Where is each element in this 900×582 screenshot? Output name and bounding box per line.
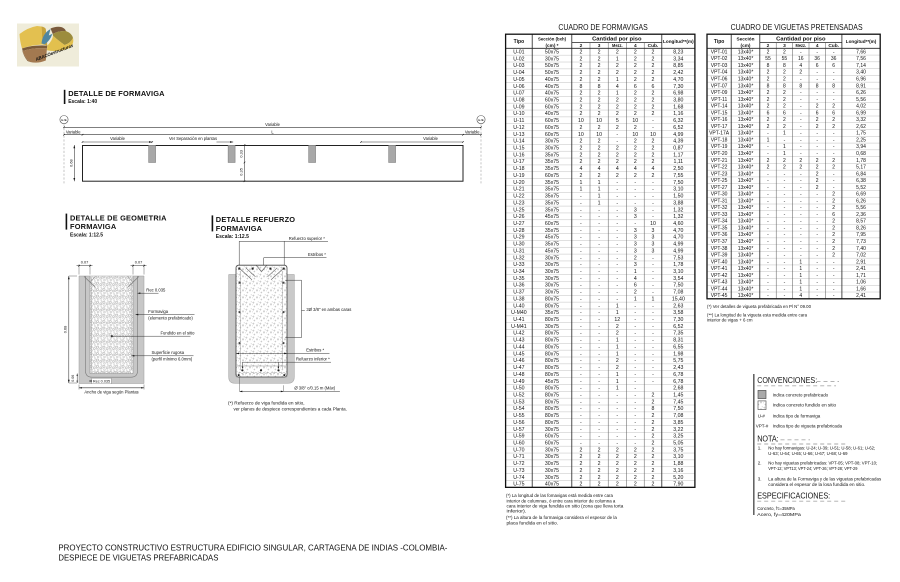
svg-text:-: - xyxy=(833,49,835,55)
svg-text:3,34: 3,34 xyxy=(673,56,683,62)
svg-text:13x40*: 13x40* xyxy=(738,158,754,164)
svg-text:6,26: 6,26 xyxy=(856,198,866,204)
svg-text:-: - xyxy=(598,276,600,282)
svg-text:Superficie rugosa: Superficie rugosa xyxy=(152,350,185,355)
svg-text:7,40: 7,40 xyxy=(856,246,866,252)
svg-text:Variable: Variable xyxy=(110,136,125,141)
svg-text:-: - xyxy=(784,219,786,225)
svg-text:2: 2 xyxy=(634,139,637,145)
svg-text:2: 2 xyxy=(616,49,619,55)
svg-text:2: 2 xyxy=(652,152,655,158)
svg-text:7,30: 7,30 xyxy=(673,84,683,90)
svg-text:2: 2 xyxy=(634,454,637,460)
svg-text:60x75: 60x75 xyxy=(545,221,559,227)
svg-text:-: - xyxy=(784,171,786,177)
svg-text:ESPECIFICACIONES:: ESPECIFICACIONES: xyxy=(757,490,830,500)
svg-text:-: - xyxy=(767,259,769,265)
svg-text:10: 10 xyxy=(578,118,584,124)
svg-text:-: - xyxy=(800,225,802,231)
svg-text:-: - xyxy=(598,413,600,419)
svg-text:10: 10 xyxy=(650,221,656,227)
svg-text:VPT-07: VPT-07 xyxy=(711,83,728,89)
svg-text:2: 2 xyxy=(579,125,582,131)
svg-text:-: - xyxy=(652,344,654,350)
svg-text:80x75: 80x75 xyxy=(545,351,559,357)
svg-text:1: 1 xyxy=(598,194,601,200)
svg-text:-: - xyxy=(816,253,818,259)
svg-text:Escala: 1:40: Escala: 1:40 xyxy=(68,99,97,105)
svg-text:U-38: U-38 xyxy=(513,296,524,302)
svg-text:3,32: 3,32 xyxy=(856,117,866,123)
svg-text:2: 2 xyxy=(616,70,619,76)
svg-text:3,58: 3,58 xyxy=(673,310,683,316)
svg-text:2: 2 xyxy=(652,434,655,440)
svg-text:4,39: 4,39 xyxy=(673,139,683,145)
svg-text:-: - xyxy=(634,221,636,227)
svg-text:U-60: U-60 xyxy=(513,441,524,447)
svg-text:-: - xyxy=(580,221,582,227)
svg-text:13x40*: 13x40* xyxy=(738,239,754,245)
svg-text:U-09: U-09 xyxy=(513,104,524,110)
svg-text:U-48: U-48 xyxy=(513,372,524,378)
svg-text:8: 8 xyxy=(598,84,601,90)
svg-text:4: 4 xyxy=(799,63,802,69)
svg-text:-: - xyxy=(652,331,654,337)
svg-text:2: 2 xyxy=(579,98,582,104)
svg-text:6: 6 xyxy=(816,110,819,116)
svg-text:2,68: 2,68 xyxy=(673,386,683,392)
svg-text:7,08: 7,08 xyxy=(673,413,683,419)
svg-text:Estribos *: Estribos * xyxy=(308,252,326,257)
svg-text:-: - xyxy=(580,207,582,213)
svg-text:60x75: 60x75 xyxy=(545,118,559,124)
svg-text:50x75: 50x75 xyxy=(545,63,559,69)
svg-text:-: - xyxy=(652,214,654,220)
svg-text:-: - xyxy=(652,118,654,124)
svg-text:-: - xyxy=(598,228,600,234)
svg-text:-: - xyxy=(652,324,654,330)
svg-text:-: - xyxy=(634,194,636,200)
svg-text:-: - xyxy=(652,303,654,309)
svg-text:-: - xyxy=(634,200,636,206)
svg-text:-: - xyxy=(800,117,802,123)
svg-text:1: 1 xyxy=(579,180,582,186)
svg-text:-: - xyxy=(598,283,600,289)
svg-text:-: - xyxy=(816,205,818,211)
svg-text:6,52: 6,52 xyxy=(673,324,683,330)
svg-text:80x75: 80x75 xyxy=(545,413,559,419)
svg-text:U-20: U-20 xyxy=(513,180,524,186)
svg-text:40x75: 40x75 xyxy=(545,84,559,90)
svg-text:4,02: 4,02 xyxy=(856,104,866,110)
svg-text:U-13: U-13 xyxy=(513,132,524,138)
svg-text:3,54: 3,54 xyxy=(673,276,683,282)
svg-text:U-05: U-05 xyxy=(513,77,524,83)
svg-text:-: - xyxy=(816,198,818,204)
svg-text:6,84: 6,84 xyxy=(856,171,866,177)
svg-text:-: - xyxy=(634,386,636,392)
svg-text:1,66: 1,66 xyxy=(856,286,866,292)
svg-text:15,40: 15,40 xyxy=(672,296,685,302)
svg-text:2: 2 xyxy=(832,117,835,123)
svg-text:(*) Ver detalles de vigueta pr: (*) Ver detalles de vigueta prefabricada… xyxy=(707,304,811,309)
svg-text:0.33: 0.33 xyxy=(238,150,243,158)
svg-text:U-25: U-25 xyxy=(513,207,524,213)
svg-text:FORMAVIGA: FORMAVIGA xyxy=(70,222,117,231)
svg-text:VPT-01: VPT-01 xyxy=(711,49,728,55)
svg-text:-: - xyxy=(800,239,802,245)
svg-text:2: 2 xyxy=(767,165,770,171)
svg-text:80x75: 80x75 xyxy=(545,296,559,302)
svg-text:VPT-25: VPT-25 xyxy=(711,178,728,184)
svg-text:2: 2 xyxy=(598,139,601,145)
svg-text:-: - xyxy=(616,132,618,138)
svg-text:3,10: 3,10 xyxy=(673,269,683,275)
svg-text:-: - xyxy=(616,248,618,254)
svg-text:2: 2 xyxy=(598,70,601,76)
svg-text:1.: 1. xyxy=(758,445,762,450)
svg-text:-: - xyxy=(634,413,636,419)
svg-text:-: - xyxy=(634,392,636,398)
svg-text:4,60: 4,60 xyxy=(673,221,683,227)
svg-text:0.35: 0.35 xyxy=(238,168,243,176)
svg-text:60x75: 60x75 xyxy=(545,104,559,110)
svg-text:1,75: 1,75 xyxy=(856,131,866,137)
svg-text:3: 3 xyxy=(634,214,637,220)
svg-text:13x40*: 13x40* xyxy=(738,205,754,211)
svg-text:-: - xyxy=(800,110,802,116)
svg-text:2: 2 xyxy=(579,454,582,460)
svg-text:13x40*: 13x40* xyxy=(738,198,754,204)
svg-text:7,53: 7,53 xyxy=(673,255,683,261)
svg-text:-: - xyxy=(816,280,818,286)
svg-text:2: 2 xyxy=(579,475,582,481)
svg-text:-: - xyxy=(580,310,582,316)
svg-text:-: - xyxy=(598,207,600,213)
svg-text:EJE: EJE xyxy=(478,118,484,122)
svg-text:2: 2 xyxy=(616,468,619,474)
svg-text:4: 4 xyxy=(616,84,619,90)
svg-text:-: - xyxy=(833,90,835,96)
svg-text:35x75: 35x75 xyxy=(545,194,559,200)
svg-text:-: - xyxy=(784,212,786,218)
svg-text:-: - xyxy=(800,246,802,252)
svg-text:-: - xyxy=(767,144,769,150)
svg-text:2: 2 xyxy=(652,413,655,419)
svg-text:-: - xyxy=(580,283,582,289)
svg-text:6: 6 xyxy=(832,63,835,69)
svg-text:3,25: 3,25 xyxy=(673,434,683,440)
svg-text:-: - xyxy=(598,303,600,309)
svg-text:VPT-17: VPT-17 xyxy=(711,124,728,130)
svg-text:U-21: U-21 xyxy=(513,187,524,193)
svg-text:2: 2 xyxy=(652,70,655,76)
svg-text:2: 2 xyxy=(816,185,819,191)
svg-text:6,96: 6,96 xyxy=(856,77,866,83)
svg-text:-: - xyxy=(580,331,582,337)
svg-text:-: - xyxy=(784,266,786,272)
svg-text:13x40*: 13x40* xyxy=(738,246,754,252)
svg-text:-: - xyxy=(634,420,636,426)
svg-text:-: - xyxy=(652,290,654,296)
svg-text:2: 2 xyxy=(598,111,601,117)
svg-text:Variable: Variable xyxy=(465,129,480,134)
svg-text:2: 2 xyxy=(652,91,655,97)
svg-text:8: 8 xyxy=(767,83,770,89)
svg-text:13x40*: 13x40* xyxy=(738,185,754,191)
svg-text:2: 2 xyxy=(767,77,770,83)
svg-text:3: 3 xyxy=(634,207,637,213)
svg-text:-: - xyxy=(767,232,769,238)
svg-text:-: - xyxy=(767,171,769,177)
svg-text:-: - xyxy=(652,379,654,385)
svg-text:3,94: 3,94 xyxy=(856,144,866,150)
svg-text:-: - xyxy=(816,49,818,55)
svg-text:2,25: 2,25 xyxy=(856,137,866,143)
svg-text:10: 10 xyxy=(578,132,584,138)
svg-text:2: 2 xyxy=(783,124,786,130)
svg-text:-: - xyxy=(598,214,600,220)
svg-text:2: 2 xyxy=(832,219,835,225)
svg-text:6: 6 xyxy=(832,110,835,116)
svg-text:Tipo: Tipo xyxy=(514,39,524,45)
svg-text:1: 1 xyxy=(616,303,619,309)
svg-text:2: 2 xyxy=(783,97,786,103)
svg-text:2: 2 xyxy=(616,98,619,104)
svg-text:-: - xyxy=(800,90,802,96)
svg-text:2: 2 xyxy=(652,111,655,117)
svg-text:4,99: 4,99 xyxy=(673,132,683,138)
svg-text:2: 2 xyxy=(579,111,582,117)
svg-text:2: 2 xyxy=(767,158,770,164)
svg-text:(*) Refuerzo de viga fundida: (*) Refuerzo de viga fundida en sitio, xyxy=(228,401,305,406)
svg-text:-: - xyxy=(833,259,835,265)
svg-text:2: 2 xyxy=(832,205,835,211)
svg-text:2: 2 xyxy=(652,104,655,110)
svg-text:-: - xyxy=(598,379,600,385)
svg-text:-: - xyxy=(784,280,786,286)
svg-text:13x40*: 13x40* xyxy=(738,178,754,184)
svg-text:VPT-23: VPT-23 xyxy=(711,171,728,177)
svg-text:-: - xyxy=(598,427,600,433)
svg-text:-: - xyxy=(580,235,582,241)
svg-text:80x75: 80x75 xyxy=(545,399,559,405)
svg-text:U-34: U-34 xyxy=(513,269,524,275)
svg-text:-: - xyxy=(598,269,600,275)
svg-text:2: 2 xyxy=(616,461,619,467)
svg-text:2: 2 xyxy=(816,158,819,164)
svg-text:-: - xyxy=(800,232,802,238)
svg-text:5,52: 5,52 xyxy=(856,185,866,191)
svg-text:-: - xyxy=(580,365,582,371)
svg-text:36: 36 xyxy=(831,56,837,62)
svg-text:2: 2 xyxy=(652,454,655,460)
svg-text:2: 2 xyxy=(652,392,655,398)
svg-text:-: - xyxy=(598,351,600,357)
svg-text:45x75: 45x75 xyxy=(545,248,559,254)
svg-text:Variable: Variable xyxy=(265,122,280,127)
svg-text:1: 1 xyxy=(799,259,802,265)
svg-text:3,10: 3,10 xyxy=(673,454,683,460)
svg-text:-: - xyxy=(580,392,582,398)
svg-text:35x75: 35x75 xyxy=(545,159,559,165)
svg-text:2: 2 xyxy=(652,447,655,453)
svg-text:-: - xyxy=(767,185,769,191)
svg-text:2,62: 2,62 xyxy=(856,124,866,130)
svg-text:-: - xyxy=(833,280,835,286)
svg-text:80x75: 80x75 xyxy=(545,344,559,350)
svg-text:2: 2 xyxy=(816,178,819,184)
svg-text:Acero, fy=420MPa: Acero, fy=420MPa xyxy=(757,512,801,517)
svg-text:-: - xyxy=(634,187,636,193)
svg-text:-: - xyxy=(616,139,618,145)
svg-text:40x75: 40x75 xyxy=(545,77,559,83)
svg-text:-: - xyxy=(767,212,769,218)
svg-text:-: - xyxy=(833,131,835,137)
svg-text:80x75: 80x75 xyxy=(545,331,559,337)
svg-text:U-73: U-73 xyxy=(513,468,524,474)
svg-text:80x75: 80x75 xyxy=(545,406,559,412)
svg-text:36: 36 xyxy=(814,56,820,62)
svg-text:-: - xyxy=(580,344,582,350)
svg-text:U-03: U-03 xyxy=(513,63,524,69)
svg-text:-: - xyxy=(634,434,636,440)
svg-text:-: - xyxy=(616,207,618,213)
svg-text:5: 5 xyxy=(616,118,619,124)
svg-text:-: - xyxy=(634,317,636,323)
svg-text:35x75: 35x75 xyxy=(545,242,559,248)
svg-text:U-46: U-46 xyxy=(513,358,524,364)
svg-text:13x40*: 13x40* xyxy=(738,151,754,157)
svg-text:80x75: 80x75 xyxy=(545,317,559,323)
svg-text:13x40*: 13x40* xyxy=(738,63,754,69)
svg-text:-: - xyxy=(634,310,636,316)
svg-text:2: 2 xyxy=(634,63,637,69)
svg-text:2: 2 xyxy=(634,159,637,165)
svg-text:13x40*: 13x40* xyxy=(738,225,754,231)
svg-text:-: - xyxy=(784,205,786,211)
svg-text:U-37: U-37 xyxy=(513,290,524,296)
svg-text:VPT-17A: VPT-17A xyxy=(709,131,730,137)
svg-text:6,78: 6,78 xyxy=(673,379,683,385)
svg-text:2: 2 xyxy=(652,468,655,474)
svg-text:-: - xyxy=(616,200,618,206)
svg-text:2: 2 xyxy=(616,358,619,364)
svg-text:-: - xyxy=(598,235,600,241)
svg-text:13x40*: 13x40* xyxy=(738,97,754,103)
svg-text:0.07: 0.07 xyxy=(135,259,143,264)
svg-text:-: - xyxy=(833,144,835,150)
svg-text:2: 2 xyxy=(579,63,582,69)
svg-text:30x75: 30x75 xyxy=(545,475,559,481)
svg-text:0.06: 0.06 xyxy=(71,375,75,382)
svg-text:VPT-12; VPT13; VPT-24; VPT-26;: VPT-12; VPT13; VPT-24; VPT-26; VPT-28; V… xyxy=(768,466,858,471)
svg-text:-: - xyxy=(616,221,618,227)
svg-text:U-55: U-55 xyxy=(513,413,524,419)
svg-text:-: - xyxy=(616,187,618,193)
svg-text:U-27: U-27 xyxy=(513,221,524,227)
svg-text:Indica tipo de formaviga: Indica tipo de formaviga xyxy=(773,414,821,419)
svg-text:U-40: U-40 xyxy=(513,303,524,309)
svg-text:13x40*: 13x40* xyxy=(738,70,754,76)
svg-text:4,70: 4,70 xyxy=(673,235,683,241)
svg-text:-: - xyxy=(616,283,618,289)
svg-text:-: - xyxy=(833,97,835,103)
svg-text:U-#: U-# xyxy=(758,414,766,419)
svg-text:VPT-43: VPT-43 xyxy=(711,280,728,286)
svg-text:13x40*: 13x40* xyxy=(738,104,754,110)
svg-text:2,36: 2,36 xyxy=(856,212,866,218)
svg-text:0.68: 0.68 xyxy=(63,326,68,334)
svg-text:U-70: U-70 xyxy=(513,447,524,453)
svg-text:8: 8 xyxy=(767,63,770,69)
svg-text:60x75: 60x75 xyxy=(545,434,559,440)
svg-text:8,85: 8,85 xyxy=(673,63,683,69)
svg-text:-: - xyxy=(800,178,802,184)
svg-text:-: - xyxy=(634,324,636,330)
svg-text:35x75: 35x75 xyxy=(545,166,559,172)
svg-text:Sección: Sección xyxy=(737,36,755,42)
svg-text:4,99: 4,99 xyxy=(673,242,683,248)
svg-text:U-12: U-12 xyxy=(513,125,524,131)
svg-text:0.07: 0.07 xyxy=(81,259,89,264)
svg-text:30x75: 30x75 xyxy=(545,468,559,474)
svg-text:-: - xyxy=(816,273,818,279)
svg-text:-: - xyxy=(652,276,654,282)
svg-text:2: 2 xyxy=(652,399,655,405)
svg-text:-: - xyxy=(767,131,769,137)
svg-text:2: 2 xyxy=(652,98,655,104)
svg-text:1: 1 xyxy=(598,200,601,206)
svg-text:-: - xyxy=(652,262,654,268)
svg-text:2: 2 xyxy=(634,461,637,467)
svg-text:-: - xyxy=(652,365,654,371)
svg-text:13x40*: 13x40* xyxy=(738,49,754,55)
svg-text:60x75: 60x75 xyxy=(545,132,559,138)
svg-text:7,56: 7,56 xyxy=(856,56,866,62)
svg-text:3,10: 3,10 xyxy=(673,187,683,193)
svg-text:VPT-06: VPT-06 xyxy=(711,77,728,83)
svg-text:-: - xyxy=(598,255,600,261)
svg-text:80x75: 80x75 xyxy=(545,372,559,378)
svg-text:80x75: 80x75 xyxy=(545,358,559,364)
svg-text:2: 2 xyxy=(799,70,802,76)
svg-text:VPT-22: VPT-22 xyxy=(711,165,728,171)
svg-text:10: 10 xyxy=(650,132,656,138)
svg-text:VPT-44: VPT-44 xyxy=(711,286,728,292)
svg-text:-: - xyxy=(580,324,582,330)
svg-text:4: 4 xyxy=(579,166,582,172)
svg-text:6: 6 xyxy=(783,110,786,116)
svg-text:2: 2 xyxy=(816,124,819,130)
svg-text:-: - xyxy=(784,273,786,279)
svg-text:7,66: 7,66 xyxy=(856,49,866,55)
svg-text:-: - xyxy=(580,386,582,392)
svg-text:Ver Separación en plantas: Ver Separación en plantas xyxy=(169,136,217,141)
svg-text:-: - xyxy=(634,365,636,371)
svg-text:13x40*: 13x40* xyxy=(738,110,754,116)
svg-text:-: - xyxy=(634,399,636,405)
svg-text:10: 10 xyxy=(632,118,638,124)
svg-text:3: 3 xyxy=(634,228,637,234)
svg-text:DETALLE DE FORMAVIGA: DETALLE DE FORMAVIGA xyxy=(68,89,165,98)
svg-text:1: 1 xyxy=(616,386,619,392)
svg-text:45x75: 45x75 xyxy=(545,235,559,241)
svg-text:-: - xyxy=(816,192,818,198)
svg-text:VPT-18: VPT-18 xyxy=(711,137,728,143)
svg-text:35x75: 35x75 xyxy=(545,310,559,316)
svg-text:1,32: 1,32 xyxy=(673,207,683,213)
